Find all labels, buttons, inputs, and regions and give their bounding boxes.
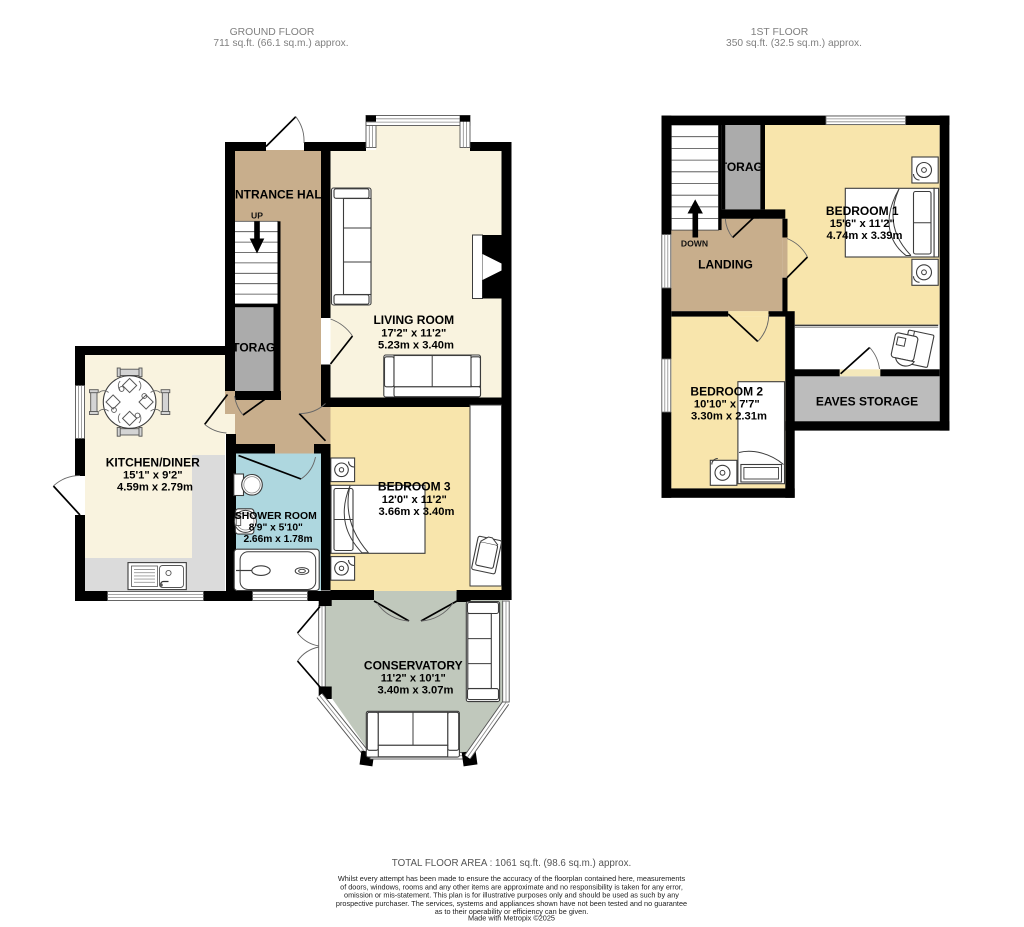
svg-text:LIVING ROOM 17'2" x 11'2" 5.2: LIVING ROOM 17'2" x 11'2" 5.23m x 3.40m [373,311,458,352]
svg-text:Made with Metropix ©2025: Made with Metropix ©2025 [468,914,555,923]
svg-text:BEDROOM 1 15'6" x 11'2" 4.74m: BEDROOM 1 15'6" x 11'2" 4.74m x 3.39m [826,202,903,242]
svg-text:711 sq.ft. (66.1 sq.m.) approx: 711 sq.ft. (66.1 sq.m.) approx. [213,38,348,49]
svg-text:EAVES STORAGE: EAVES STORAGE [816,395,918,409]
svg-text:TOTAL FLOOR AREA : 1061 sq.ft.: TOTAL FLOOR AREA : 1061 sq.ft. (98.6 sq.… [392,858,631,869]
svg-text:350 sq.ft. (32.5 sq.m.) approx: 350 sq.ft. (32.5 sq.m.) approx. [726,38,862,49]
svg-text:1ST FLOOR: 1ST FLOOR [751,27,809,38]
svg-text:BEDROOM 2 10'10" x 7'7" 3.30m: BEDROOM 2 10'10" x 7'7" 3.30m x 2.31m [690,383,767,423]
svg-text:LANDING: LANDING [698,258,753,272]
svg-text:BEDROOM 3 12'0" x 11'2" 3.66m: BEDROOM 3 12'0" x 11'2" 3.66m x 3.40m [378,478,455,519]
svg-text:ENTRANCE HALL: ENTRANCE HALL [227,188,329,202]
svg-text:GROUND FLOOR: GROUND FLOOR [230,27,315,38]
svg-text:DOWN: DOWN [681,239,708,249]
svg-text:UP: UP [251,211,263,221]
